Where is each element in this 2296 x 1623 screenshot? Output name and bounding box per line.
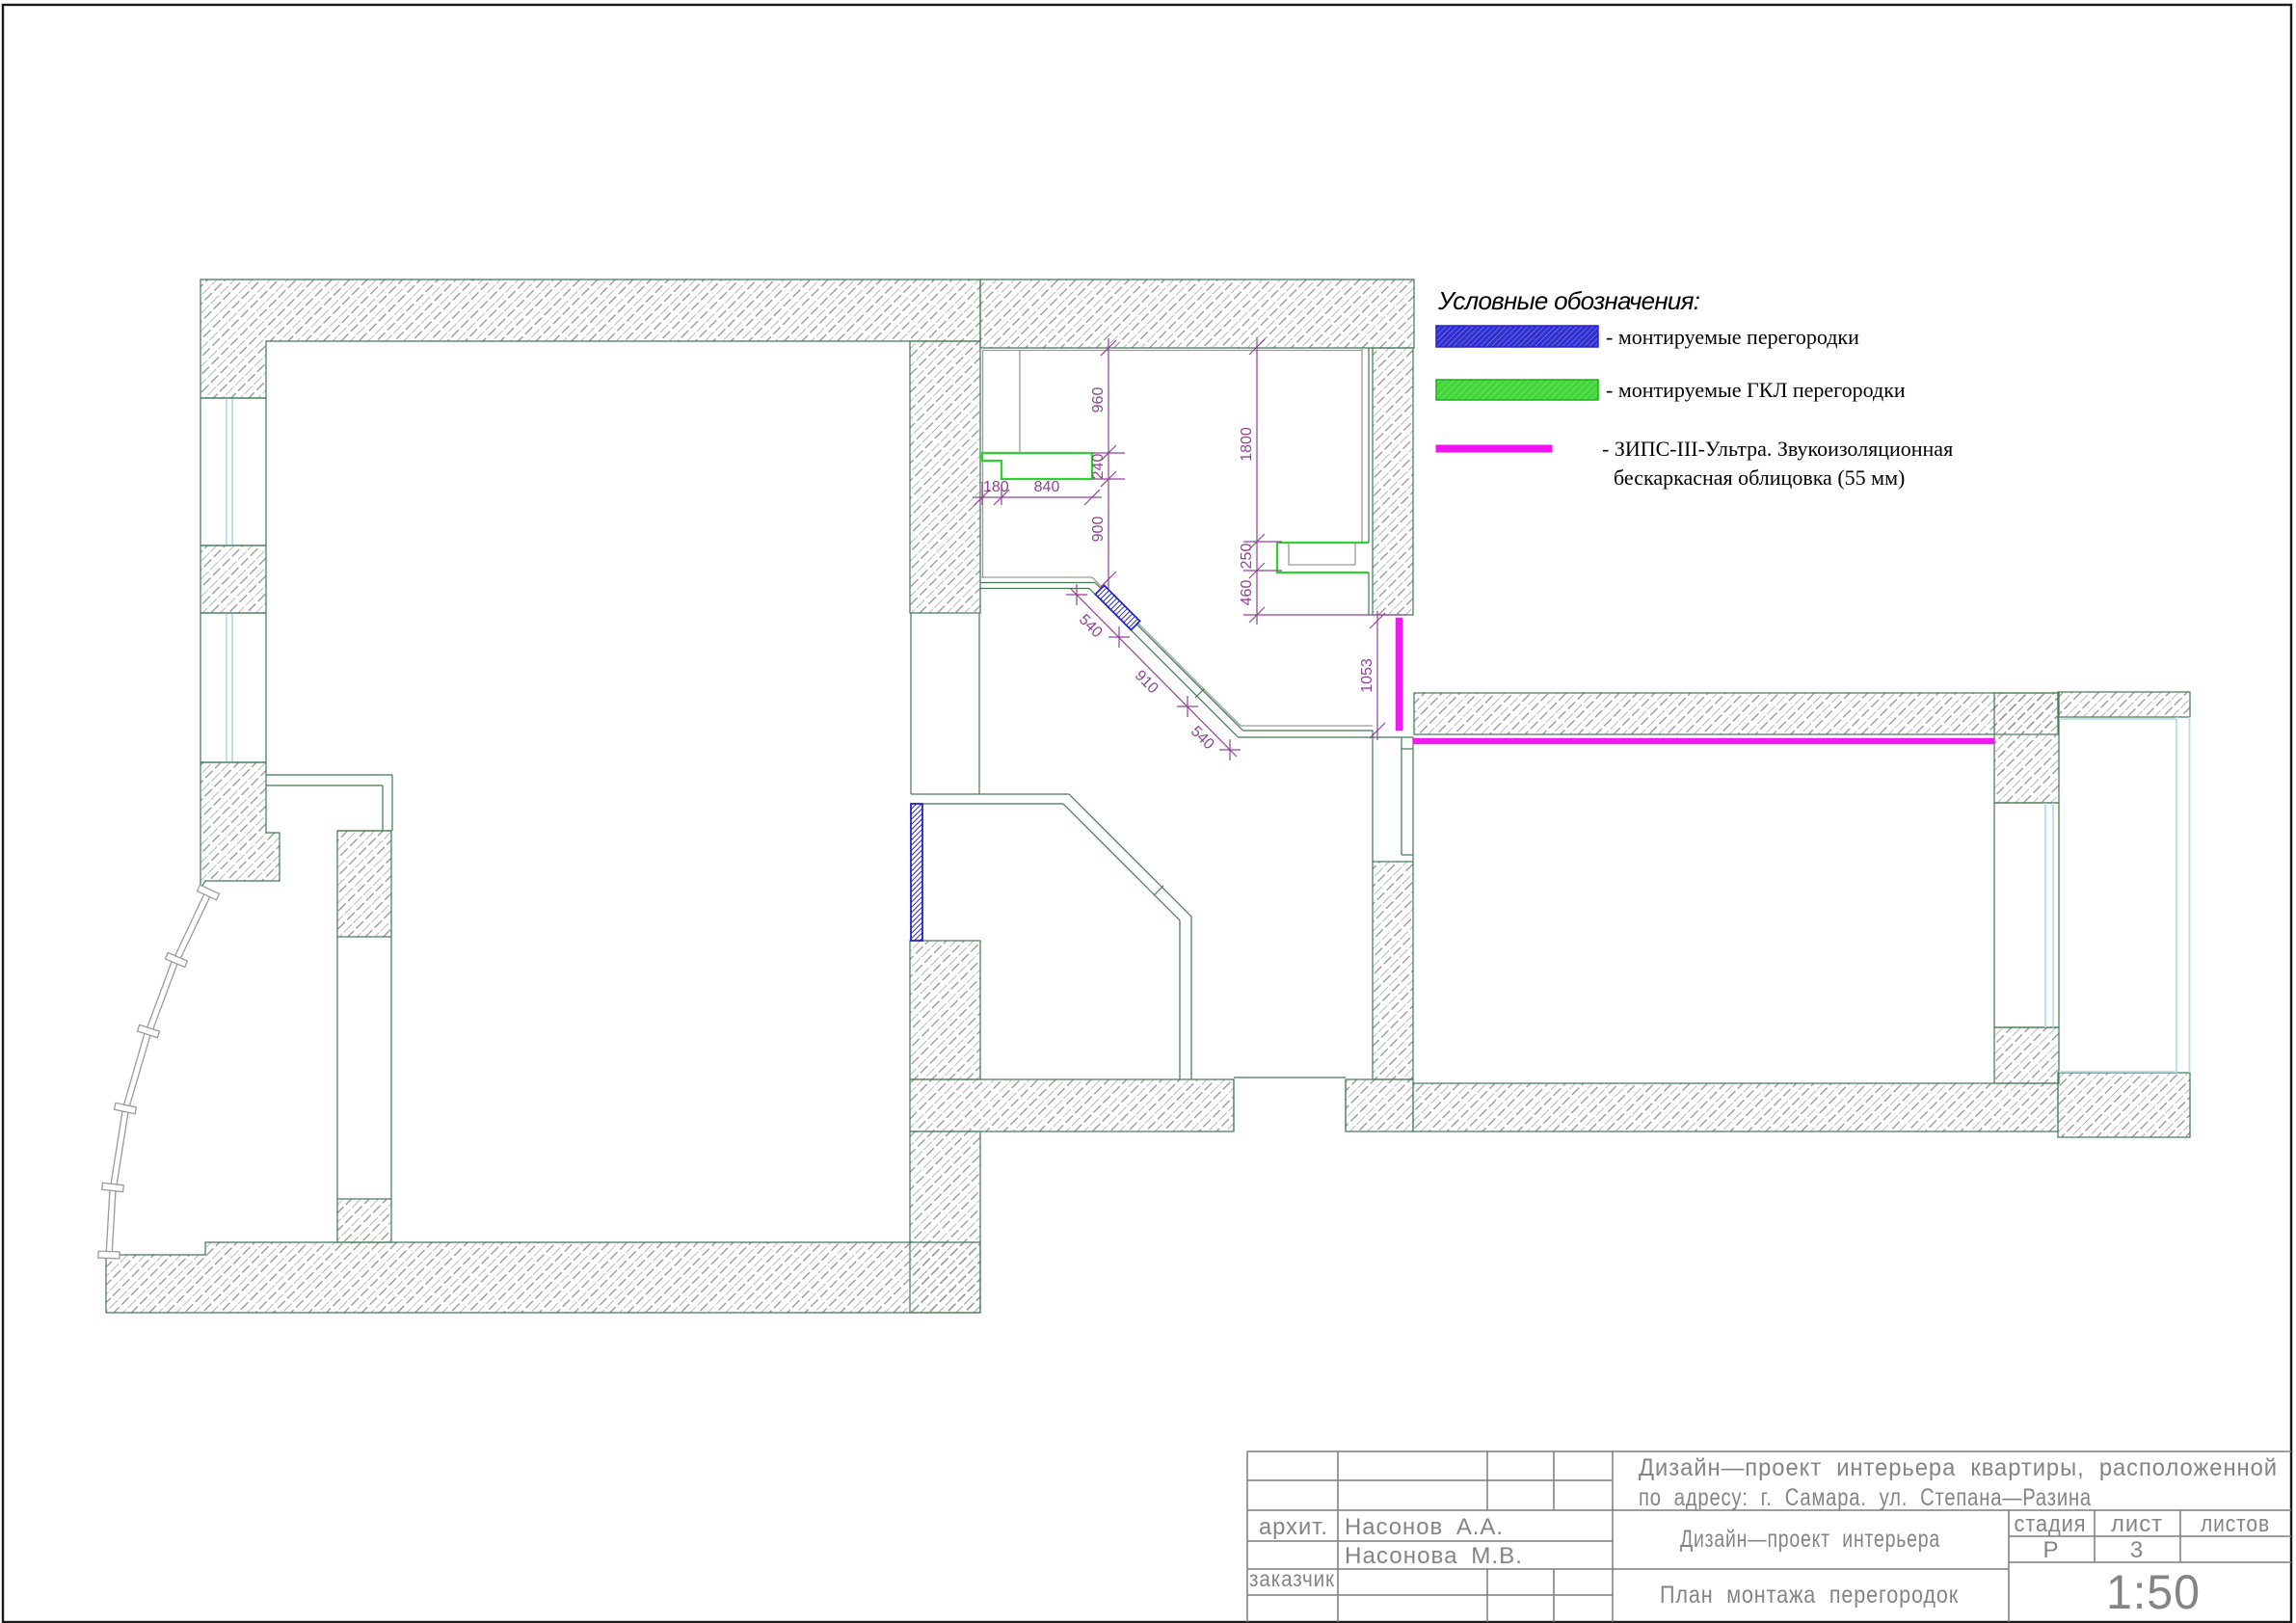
- svg-text:по адресу: г. Самара. ул. Степ: по адресу: г. Самара. ул. Степана—Разина: [1639, 1484, 2092, 1511]
- svg-text:листов: листов: [2201, 1511, 2270, 1537]
- svg-text:стадия: стадия: [2015, 1511, 2087, 1537]
- svg-text:заказчик: заказчик: [1249, 1566, 1335, 1591]
- svg-text:лист: лист: [2111, 1511, 2163, 1537]
- svg-text:Дизайн—проект интерьера кварти: Дизайн—проект интерьера квартиры, распол…: [1639, 1454, 2278, 1481]
- svg-text:1053: 1053: [1359, 658, 1375, 693]
- svg-text:Дизайн—проект интерьера: Дизайн—проект интерьера: [1680, 1526, 1940, 1553]
- svg-text:- ЗИПС-III-Ультра. Звукоизоляц: - ЗИПС-III-Ультра. Звукоизоляционная: [1602, 437, 1953, 461]
- svg-text:180: 180: [983, 479, 1009, 495]
- svg-text:Насонова М.В.: Насонова М.В.: [1345, 1543, 1523, 1569]
- svg-text:3: 3: [2130, 1537, 2144, 1563]
- svg-text:1800: 1800: [1239, 427, 1255, 462]
- svg-text:архит.: архит.: [1259, 1514, 1328, 1540]
- svg-text:460: 460: [1239, 580, 1255, 606]
- svg-text:План монтажа перегородок: План монтажа перегородок: [1660, 1582, 1959, 1609]
- svg-text:- монтируемые перегородки: - монтируемые перегородки: [1606, 325, 1859, 349]
- svg-text:Насонов А.А.: Насонов А.А.: [1345, 1514, 1504, 1540]
- svg-text:900: 900: [1090, 517, 1107, 543]
- svg-text:960: 960: [1090, 387, 1107, 413]
- svg-text:Условные обозначения:: Условные обозначения:: [1437, 286, 1700, 315]
- svg-text:840: 840: [1034, 479, 1060, 495]
- svg-text:250: 250: [1239, 544, 1255, 570]
- svg-text:Р: Р: [2042, 1537, 2059, 1563]
- svg-text:- монтируемые ГКЛ перегородки: - монтируемые ГКЛ перегородки: [1606, 378, 1906, 402]
- svg-text:1:50: 1:50: [2106, 1565, 2201, 1619]
- svg-text:240: 240: [1090, 454, 1107, 480]
- svg-text:бескаркасная облицовка (55 мм): бескаркасная облицовка (55 мм): [1614, 466, 1905, 490]
